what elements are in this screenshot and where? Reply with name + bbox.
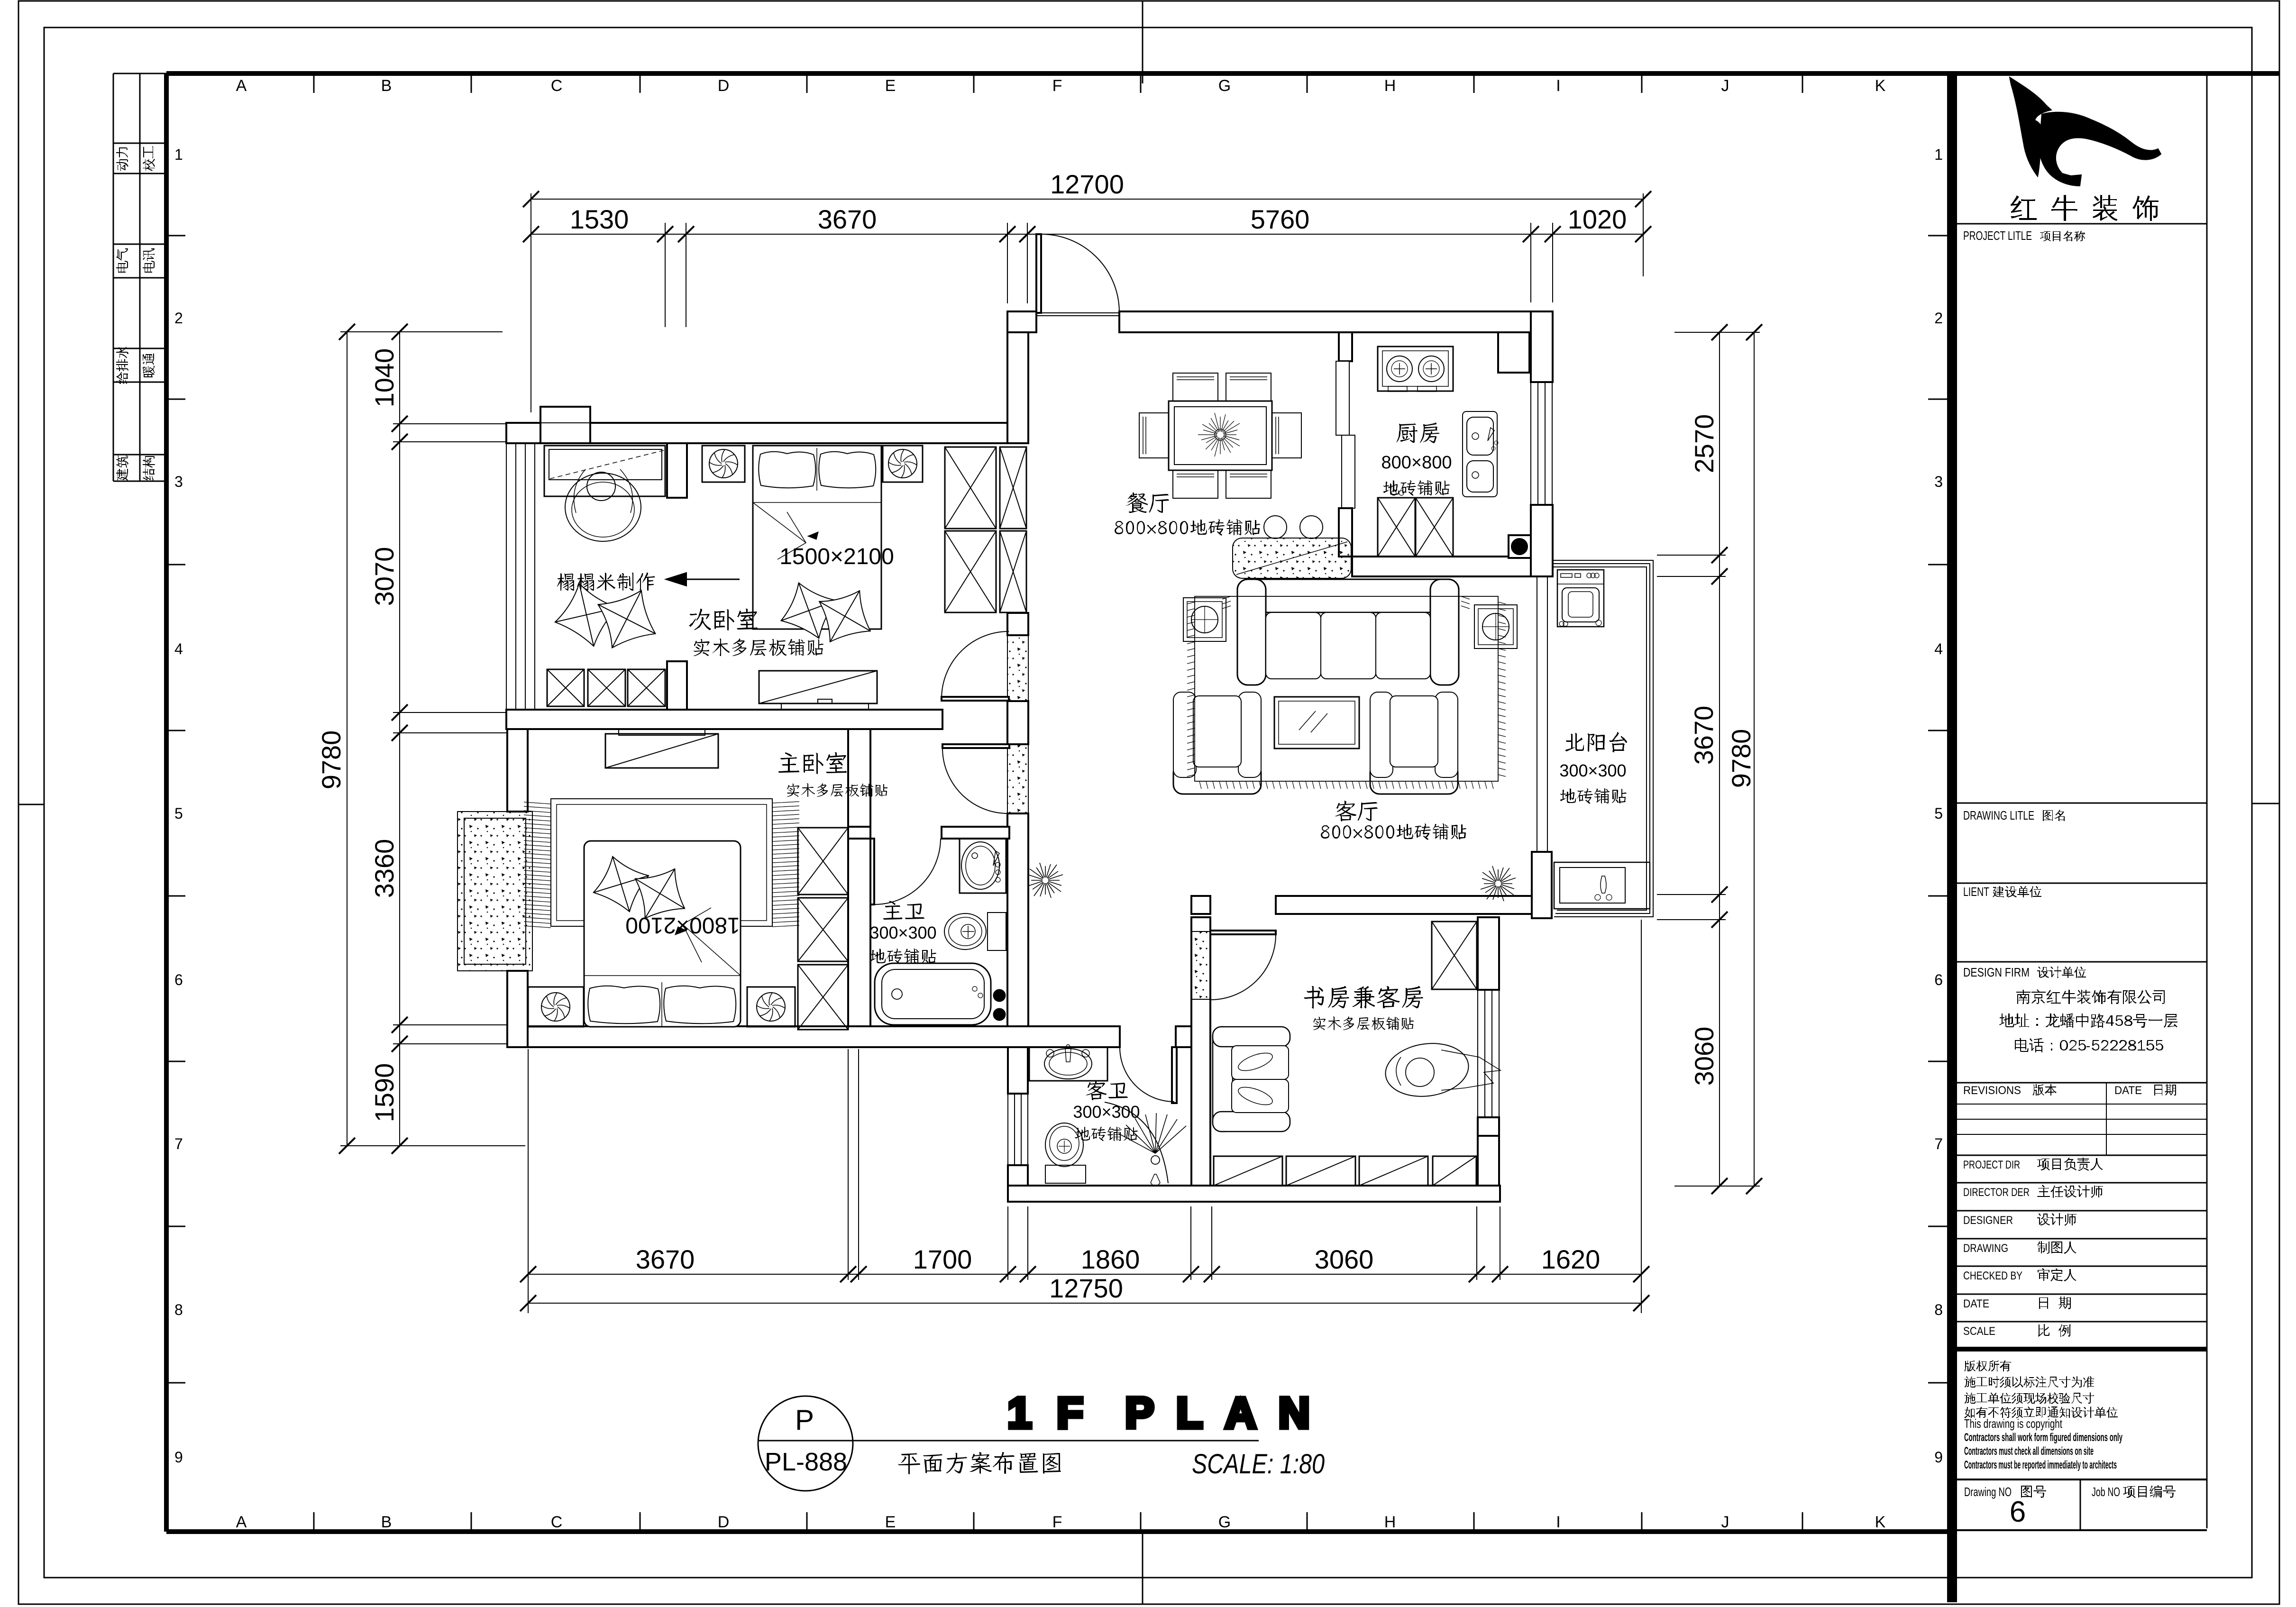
svg-text:9: 9	[174, 1449, 183, 1466]
svg-text:9780: 9780	[316, 730, 346, 790]
svg-text:300×300: 300×300	[1073, 1102, 1140, 1122]
svg-text:3360: 3360	[369, 839, 399, 898]
svg-text:P: P	[795, 1404, 814, 1436]
svg-text:B: B	[381, 1513, 392, 1531]
svg-text:DATE: DATE	[1963, 1297, 1989, 1310]
svg-text:DESIGNER: DESIGNER	[1963, 1214, 2013, 1227]
svg-text:4: 4	[174, 640, 183, 657]
svg-text:PROJECT DIR: PROJECT DIR	[1963, 1159, 2020, 1171]
svg-text:E: E	[885, 1513, 896, 1531]
svg-text:1620: 1620	[1541, 1244, 1601, 1274]
svg-text:DIRECTOR DER: DIRECTOR DER	[1963, 1186, 2030, 1199]
svg-text:F: F	[1052, 77, 1062, 95]
svg-text:CHECKED BY: CHECKED BY	[1963, 1269, 2022, 1282]
svg-text:3070: 3070	[369, 547, 399, 606]
svg-text:6: 6	[1934, 971, 1943, 988]
svg-text:A: A	[236, 77, 247, 95]
svg-text:C: C	[551, 77, 563, 95]
svg-text:5760: 5760	[1251, 204, 1310, 234]
svg-text:12700: 12700	[1050, 169, 1124, 199]
svg-text:Contractors shall work form fi: Contractors shall work form figured dime…	[1964, 1431, 2122, 1444]
svg-text:1530: 1530	[570, 204, 629, 234]
svg-text:1: 1	[1934, 146, 1943, 163]
svg-text:1590: 1590	[369, 1063, 399, 1123]
svg-text:1860: 1860	[1081, 1244, 1140, 1274]
svg-text:5: 5	[174, 805, 183, 822]
svg-text:1: 1	[174, 146, 183, 163]
svg-text:I: I	[1556, 77, 1560, 95]
svg-text:LIENT: LIENT	[1963, 885, 1989, 899]
svg-text:PROJECT LITLE: PROJECT LITLE	[1963, 228, 2032, 243]
svg-text:REVISIONS: REVISIONS	[1963, 1084, 2021, 1097]
svg-text:3060: 3060	[1315, 1244, 1374, 1274]
svg-text:J: J	[1721, 1513, 1729, 1531]
svg-text:1500×2100: 1500×2100	[779, 544, 894, 569]
svg-text:H: H	[1384, 1513, 1396, 1531]
svg-text:PL-888: PL-888	[765, 1448, 847, 1476]
svg-text:A: A	[236, 1513, 247, 1531]
svg-text:SCALE: SCALE	[1963, 1325, 1995, 1338]
svg-text:6: 6	[2010, 1496, 2026, 1528]
svg-text:DRAWING LITLE: DRAWING LITLE	[1963, 808, 2034, 822]
svg-text:5: 5	[1934, 805, 1943, 822]
svg-text:Contractors must be reported i: Contractors must be reported immediately…	[1964, 1459, 2117, 1471]
svg-text:D: D	[718, 77, 730, 95]
svg-text:3670: 3670	[636, 1244, 695, 1274]
svg-text:8: 8	[1934, 1301, 1943, 1318]
svg-text:D: D	[718, 1513, 730, 1531]
svg-text:1800×2100: 1800×2100	[625, 913, 740, 938]
svg-text:G: G	[1218, 1513, 1231, 1531]
svg-text:300×300: 300×300	[869, 923, 936, 942]
svg-text:B: B	[381, 77, 392, 95]
svg-text:3670: 3670	[818, 204, 877, 234]
svg-text:E: E	[885, 77, 896, 95]
svg-text:Drawing NO: Drawing NO	[1964, 1485, 2012, 1499]
svg-text:3: 3	[1934, 473, 1943, 490]
svg-text:800×800: 800×800	[1381, 453, 1452, 473]
svg-text:300×300: 300×300	[1559, 761, 1626, 780]
svg-text:3670: 3670	[1689, 706, 1719, 765]
svg-text:K: K	[1875, 1513, 1886, 1531]
svg-text:H: H	[1384, 77, 1396, 95]
svg-text:7: 7	[174, 1135, 183, 1152]
svg-text:J: J	[1721, 77, 1729, 95]
svg-text:I: I	[1556, 1513, 1560, 1531]
svg-text:This drawing is copyright: This drawing is copyright	[1964, 1416, 2063, 1431]
svg-text:7: 7	[1934, 1135, 1943, 1152]
svg-text:1040: 1040	[369, 348, 399, 408]
svg-text:3060: 3060	[1689, 1027, 1719, 1086]
svg-text:9780: 9780	[1726, 729, 1756, 788]
svg-text:SCALE: 1:80: SCALE: 1:80	[1192, 1449, 1325, 1479]
svg-text:1700: 1700	[913, 1244, 972, 1274]
svg-text:Contractors must check all dim: Contractors must check all dimensions on…	[1964, 1445, 2094, 1458]
svg-text:DESIGN FIRM: DESIGN FIRM	[1963, 965, 2030, 979]
svg-text:8: 8	[174, 1301, 183, 1318]
svg-text:K: K	[1875, 77, 1886, 95]
svg-text:4: 4	[1934, 640, 1943, 657]
svg-text:9: 9	[1934, 1449, 1943, 1466]
svg-text:F: F	[1052, 1513, 1062, 1531]
svg-text:2: 2	[1934, 310, 1943, 327]
svg-text:2570: 2570	[1689, 414, 1719, 474]
svg-text:G: G	[1218, 77, 1231, 95]
svg-text:3: 3	[174, 473, 183, 490]
svg-text:1020: 1020	[1568, 204, 1627, 234]
svg-text:12750: 12750	[1049, 1273, 1123, 1303]
svg-text:DATE: DATE	[2114, 1084, 2142, 1097]
svg-text:2: 2	[174, 310, 183, 327]
svg-text:DRAWING: DRAWING	[1963, 1242, 2008, 1255]
svg-text:6: 6	[174, 971, 183, 988]
svg-text:Job NO: Job NO	[2092, 1485, 2120, 1499]
svg-text:C: C	[551, 1513, 563, 1531]
